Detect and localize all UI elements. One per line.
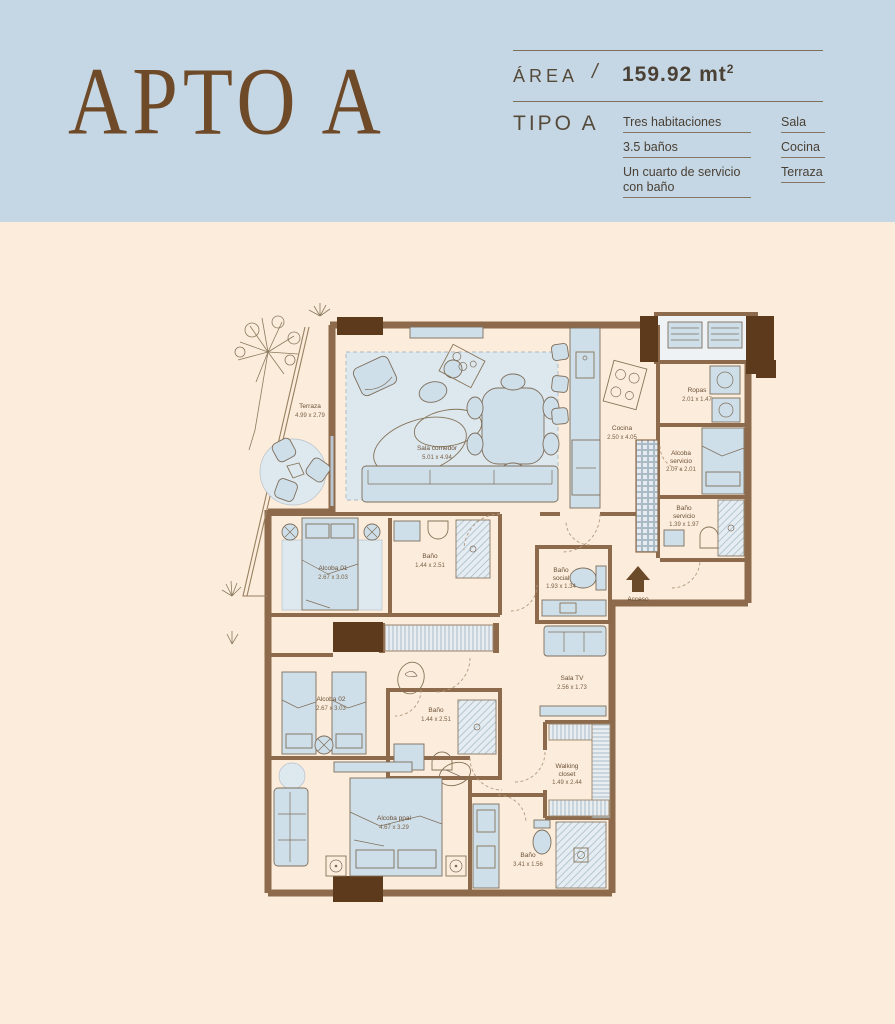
room-label: Terraza <box>299 403 321 410</box>
washer <box>710 366 740 394</box>
column <box>756 360 776 378</box>
area-value: 159.92 mt2 <box>622 62 734 87</box>
ac-unit <box>668 322 702 348</box>
room-label: Baño <box>422 553 438 560</box>
room-label: Alcoba ppal <box>377 815 412 822</box>
features-column: Tres habitaciones 3.5 baños Un cuarto de… <box>623 115 751 205</box>
pillow <box>286 734 312 748</box>
toilet <box>700 527 718 548</box>
area-label: ÁREA <box>513 66 578 87</box>
room-dim: 2.50 x 4.05 <box>607 435 637 441</box>
divider-line <box>513 50 823 51</box>
room-label: Ropas <box>688 387 708 394</box>
bar-stool <box>551 375 569 393</box>
ac-unit <box>708 322 742 348</box>
dining-chair <box>501 374 525 390</box>
room-label: servicio <box>673 513 695 520</box>
room-label: Baño <box>520 852 536 859</box>
tv-console <box>334 762 412 772</box>
alcoba-02 <box>282 672 366 754</box>
room-label: Cocina <box>612 425 633 432</box>
toilet <box>428 521 448 539</box>
room-label: Alcoba <box>671 450 691 457</box>
room-dim: 2.67 x 3.03 <box>316 706 346 712</box>
divider-line <box>513 101 823 102</box>
stove <box>603 360 647 409</box>
room-dim: 5.01 x 4.94 <box>422 455 452 461</box>
header-band: APTO A ÁREA / 159.92 mt2 TIPO A Tres hab… <box>0 0 895 222</box>
toilet <box>533 830 551 854</box>
sink <box>664 530 684 546</box>
room-label: social <box>553 575 570 582</box>
room-dim: 1.49 x 2.44 <box>552 780 582 786</box>
bano-social <box>542 566 606 616</box>
shower <box>456 520 490 578</box>
room-dim: 1.44 x 2.51 <box>415 563 445 569</box>
column <box>333 876 383 902</box>
dining-table <box>482 388 544 464</box>
room-dim: 1.93 x 1.34 <box>546 584 576 590</box>
pillow <box>306 524 329 538</box>
dryer <box>712 398 740 422</box>
area-value-sup: 2 <box>727 62 735 76</box>
column <box>337 317 383 335</box>
dining-chair <box>543 433 559 455</box>
amenity-item: Sala <box>781 115 825 133</box>
access-label: Acceso <box>627 596 649 603</box>
pillow <box>336 734 362 748</box>
pillow <box>706 472 740 486</box>
feature-item: 3.5 baños <box>623 140 751 158</box>
vanity <box>394 521 420 541</box>
room-label: Alcoba 01 <box>319 565 348 572</box>
closet-shelf <box>549 800 609 816</box>
shower <box>718 500 744 556</box>
amenities-column: Sala Cocina Terraza <box>781 115 825 190</box>
console-shelf <box>410 327 483 338</box>
column <box>333 622 383 652</box>
access <box>626 566 650 592</box>
lower-cabinet <box>572 440 600 495</box>
bar-stool <box>551 407 568 424</box>
vanity <box>542 600 606 616</box>
alcoba-ppal <box>274 758 474 876</box>
room-dim: 3.41 x 1.56 <box>513 862 543 868</box>
room-label: servicio <box>670 458 692 465</box>
room-dim: 2.56 x 1.73 <box>557 685 587 691</box>
apartment-title: APTO A <box>68 46 386 157</box>
room-dim: 1.44 x 2.51 <box>421 717 451 723</box>
ropas <box>710 366 740 422</box>
room-dim: 4.67 x 3.29 <box>379 825 409 831</box>
bar-stool <box>551 343 569 361</box>
room-dim: 2.07 x 2.01 <box>666 467 696 473</box>
toilet-tank <box>596 566 606 590</box>
room-label: Baño <box>428 707 444 714</box>
floor-plan: Terraza 4.99 x 2.79 Sala comedor 5.01 x … <box>0 222 895 1024</box>
tv-console <box>540 706 606 716</box>
tv-sofa <box>544 626 606 656</box>
room-dim: 2.01 x 1.47 <box>682 397 712 403</box>
shower <box>556 822 606 888</box>
feature-item: Tres habitaciones <box>623 115 751 133</box>
column <box>640 316 658 362</box>
sala-tv <box>540 626 606 716</box>
room-dim: 2.67 x 3.03 <box>318 575 348 581</box>
bano-01 <box>394 520 490 578</box>
pillow <box>331 524 354 538</box>
pantry-cabinet <box>636 440 658 552</box>
alcoba-servicio <box>702 428 744 494</box>
amenity-item: Terraza <box>781 165 825 183</box>
access-arrow-icon <box>626 566 650 592</box>
round-rug <box>279 763 305 789</box>
hall-closet <box>385 625 493 651</box>
toilet-tank <box>534 820 550 828</box>
bedroom-sofa <box>274 788 308 866</box>
dining-chair <box>467 397 483 419</box>
room-label: Alcoba 02 <box>317 696 346 703</box>
tipo-label: TIPO A <box>513 112 599 136</box>
area-separator: / <box>592 61 598 84</box>
pillow <box>398 850 436 868</box>
room-label: Sala comedor <box>417 445 458 452</box>
alcoba-01 <box>282 518 382 610</box>
room-label: Sala TV <box>560 675 584 682</box>
pillow <box>356 850 394 868</box>
shrub <box>222 581 241 644</box>
terrace-tree <box>235 316 300 450</box>
shrub <box>309 303 330 316</box>
area-value-number: 159.92 mt <box>622 63 727 86</box>
room-dim: 4.99 x 2.79 <box>295 413 325 419</box>
dining-chair <box>467 433 483 455</box>
amenity-item: Cocina <box>781 140 825 158</box>
room-label: Walking <box>556 763 579 770</box>
room-label: Baño <box>676 505 692 512</box>
sala-comedor <box>346 327 559 502</box>
shower <box>458 700 496 754</box>
room-label: Baño <box>553 567 569 574</box>
toilet <box>432 752 452 770</box>
feature-item: Un cuarto de servicio con baño <box>623 165 751 198</box>
room-dim: 1.39 x 1.97 <box>669 522 699 528</box>
room-label: closet <box>559 771 576 778</box>
